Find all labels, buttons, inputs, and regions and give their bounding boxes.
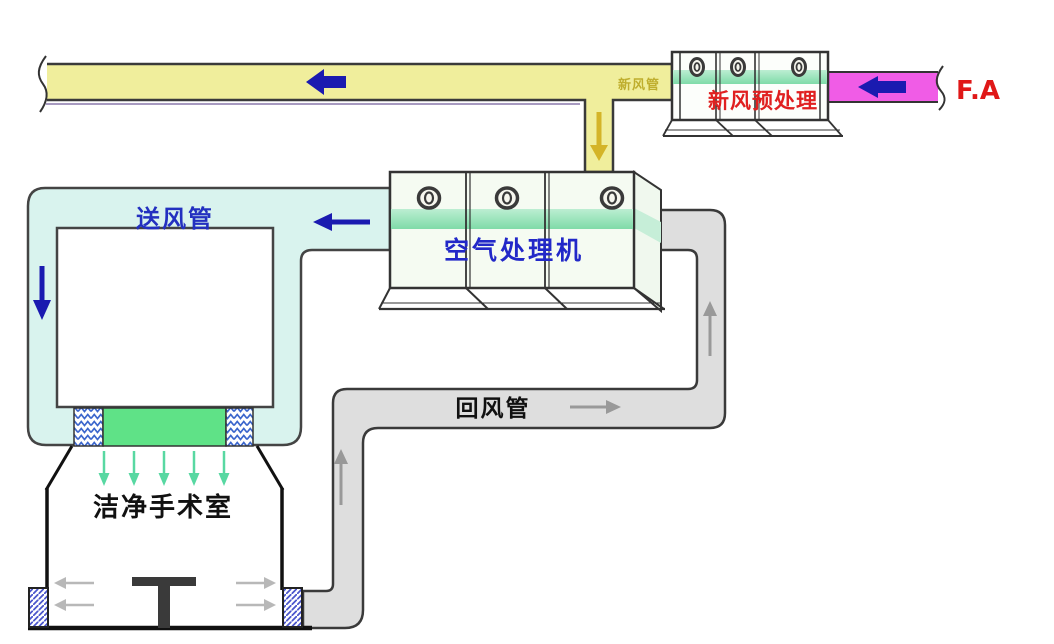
hvac-airflow-diagram: 新风管 F.A 回风管 送风管: [0, 0, 1054, 644]
laminar-diffuser: [103, 408, 226, 446]
fresh-air-duct: 新风管: [38, 56, 672, 172]
return-duct-label: 回风管: [456, 395, 531, 422]
return-grille-right-icon: [283, 588, 302, 627]
operating-table-stem: [158, 586, 170, 628]
fresh-air-duct-label: 新风管: [618, 77, 660, 93]
fan-icon: [793, 59, 806, 76]
fan-icon: [419, 188, 440, 208]
fresh-air-duct-body: [44, 64, 672, 172]
fresh-air-source-label: F.A: [956, 76, 1000, 106]
operating-room-label: 洁净手术室: [93, 492, 233, 523]
ahu-label: 空气处理机: [444, 236, 584, 265]
clean-operating-room: 洁净手术室: [28, 446, 312, 628]
pretreatment-unit: 新风预处理: [663, 52, 843, 136]
supply-duct-label: 送风管: [136, 205, 214, 233]
ceiling-plenum-outlets: [74, 408, 253, 446]
hepa-filter-right-icon: [226, 408, 253, 446]
fan-icon: [691, 59, 704, 76]
fan-icon: [497, 188, 518, 208]
air-handling-unit: 空气处理机: [379, 172, 665, 311]
room-wall-slope-left: [46, 446, 72, 490]
ahu-green-stripe: [391, 209, 633, 229]
pretreatment-label: 新风预处理: [708, 89, 818, 113]
laminar-flow-arrows: [99, 451, 230, 486]
fan-icon: [732, 59, 745, 76]
diagram-canvas: 新风管 F.A 回风管 送风管: [0, 0, 1054, 644]
outdoor-air-duct: F.A: [828, 66, 1000, 110]
room-wall-slope-right: [257, 446, 283, 490]
ahu-base-skid: [379, 288, 665, 309]
hepa-filter-left-icon: [74, 408, 103, 446]
pretreatment-base-skid: [663, 120, 843, 136]
fan-icon: [602, 188, 623, 208]
operating-table-top: [132, 577, 196, 586]
return-grille-left-icon: [29, 588, 48, 627]
